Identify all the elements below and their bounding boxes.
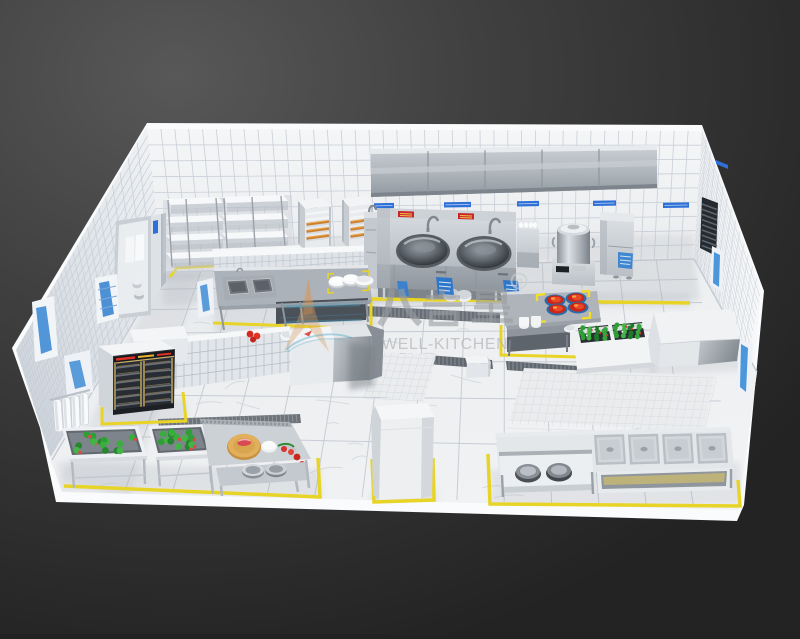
svg-text:R: R	[515, 277, 523, 289]
svg-text:WELL-KITCHEN: WELL-KITCHEN	[382, 336, 508, 353]
